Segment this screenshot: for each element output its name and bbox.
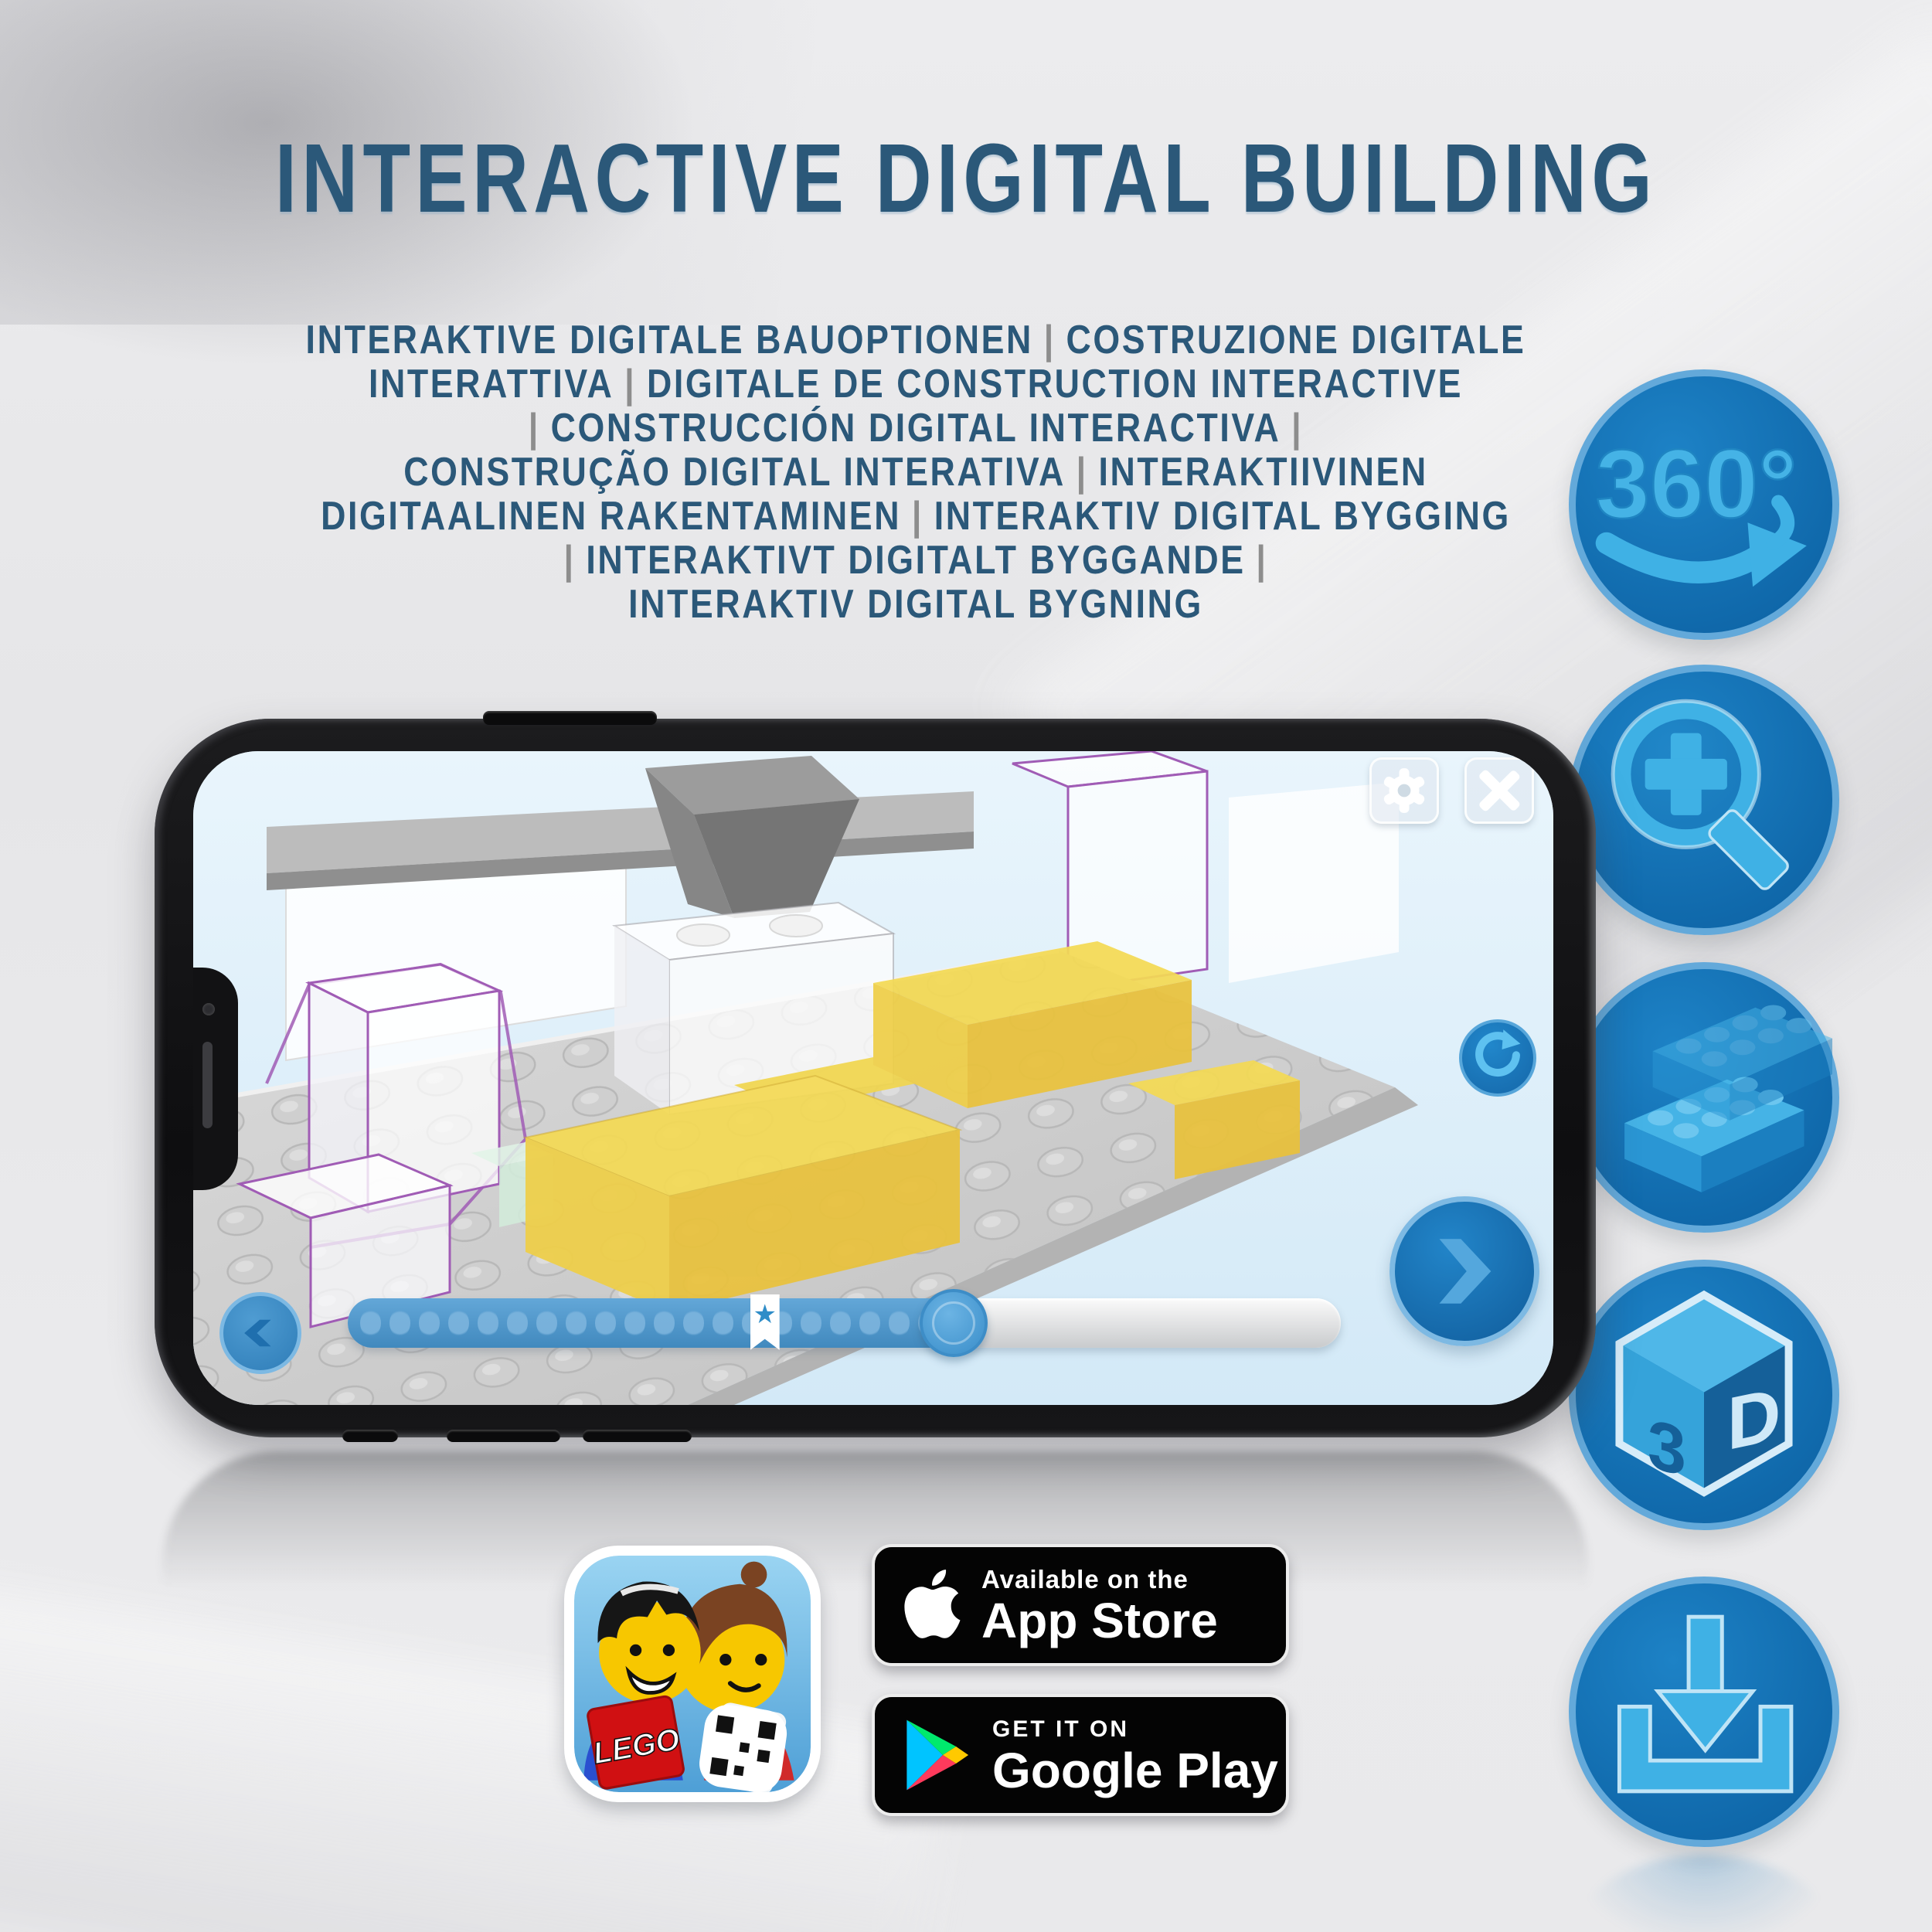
previous-step-button[interactable]: [219, 1292, 301, 1374]
subtitle-line: INTERAKTIVE DIGITALE BAUOPTIONEN|COSTRUZ…: [218, 318, 1614, 362]
lego-app-icon[interactable]: LEGO: [564, 1546, 821, 1802]
progress-dot: [683, 1309, 704, 1337]
page-title: INTERACTIVE DIGITAL BUILDING: [193, 122, 1739, 234]
subtitle-line: INTERAKTIV DIGITAL BYGNING: [218, 583, 1614, 627]
chevron-right-icon: [1395, 1202, 1534, 1341]
build-progress-bar[interactable]: ★: [348, 1298, 1341, 1348]
settings-button[interactable]: [1369, 757, 1439, 824]
phone-side-button: [447, 1430, 560, 1442]
progress-dot: [624, 1309, 645, 1337]
icon-reflection: [1569, 1855, 1839, 1932]
progress-dot: [859, 1309, 880, 1337]
progress-dot: [419, 1309, 440, 1337]
progress-dot: [360, 1309, 381, 1337]
apple-icon: [901, 1569, 961, 1642]
360-label: 360°: [1596, 430, 1798, 539]
google-play-name: Google Play: [992, 1745, 1278, 1796]
next-step-button[interactable]: [1389, 1196, 1539, 1346]
progress-dot: [566, 1309, 587, 1337]
progress-dot: [536, 1309, 557, 1337]
google-play-tagline: GET IT ON: [992, 1714, 1278, 1745]
3d-right-face-label: D: [1727, 1371, 1781, 1466]
subtitle-line: INTERATTIVA|DIGITALE DE CONSTRUCTION INT…: [218, 362, 1614, 406]
zoom-in-icon: [1569, 665, 1839, 935]
app-store-name: App Store: [981, 1595, 1218, 1646]
close-button[interactable]: [1464, 757, 1534, 824]
brick-building-icon: [1569, 962, 1839, 1233]
progress-dot: [830, 1309, 851, 1337]
google-play-icon: [901, 1715, 972, 1795]
progress-fill: [348, 1298, 964, 1348]
progress-dot: [595, 1309, 616, 1337]
phone-side-button: [583, 1430, 692, 1442]
3d-left-face-label: 3: [1648, 1405, 1686, 1492]
phone-notch: [193, 968, 238, 1190]
close-icon: [1467, 760, 1532, 821]
progress-dot: [801, 1309, 821, 1337]
subtitle-line: CONSTRUÇÃO DIGITAL INTERATIVA|INTERAKTII…: [218, 451, 1614, 495]
app-store-tagline: Available on the: [981, 1564, 1218, 1595]
progress-dot: [654, 1309, 675, 1337]
3d-view-icon: 3 D: [1569, 1260, 1839, 1530]
front-camera: [202, 1003, 215, 1015]
progress-dot: [507, 1309, 528, 1337]
subtitle-translations: INTERAKTIVE DIGITALE BAUOPTIONEN|COSTRUZ…: [218, 318, 1614, 627]
rotate-icon: [1462, 1022, 1533, 1094]
progress-dot: [713, 1309, 733, 1337]
phone-side-button: [342, 1430, 398, 1442]
google-play-badge[interactable]: GET IT ON Google Play: [872, 1694, 1289, 1816]
rotate-view-button[interactable]: [1459, 1019, 1536, 1097]
progress-slider-handle[interactable]: [920, 1289, 988, 1357]
progress-dot: [448, 1309, 469, 1337]
app-store-badge[interactable]: Available on the App Store: [872, 1544, 1289, 1666]
download-icon: [1569, 1577, 1839, 1847]
subtitle-line: |INTERAKTIVT DIGITALT BYGGANDE|: [218, 539, 1614, 583]
subtitle-line: DIGITAALINEN RAKENTAMINEN|INTERAKTIV DIG…: [218, 495, 1614, 539]
chevron-left-icon: [223, 1296, 298, 1370]
phone-screen: ★: [193, 751, 1553, 1405]
progress-dot: [389, 1309, 410, 1337]
subtitle-line: |CONSTRUCCIÓN DIGITAL INTERACTIVA|: [218, 406, 1614, 451]
phone-mockup: ★: [155, 719, 1596, 1437]
360-rotation-icon: 360°: [1569, 369, 1839, 640]
progress-dot: [889, 1309, 910, 1337]
earpiece-speaker: [202, 1042, 213, 1128]
gear-icon: [1372, 760, 1437, 821]
promo-poster: INTERACTIVE DIGITAL BUILDING INTERAKTIVE…: [0, 0, 1932, 1932]
progress-dot: [478, 1309, 498, 1337]
phone-power-button: [483, 711, 657, 725]
